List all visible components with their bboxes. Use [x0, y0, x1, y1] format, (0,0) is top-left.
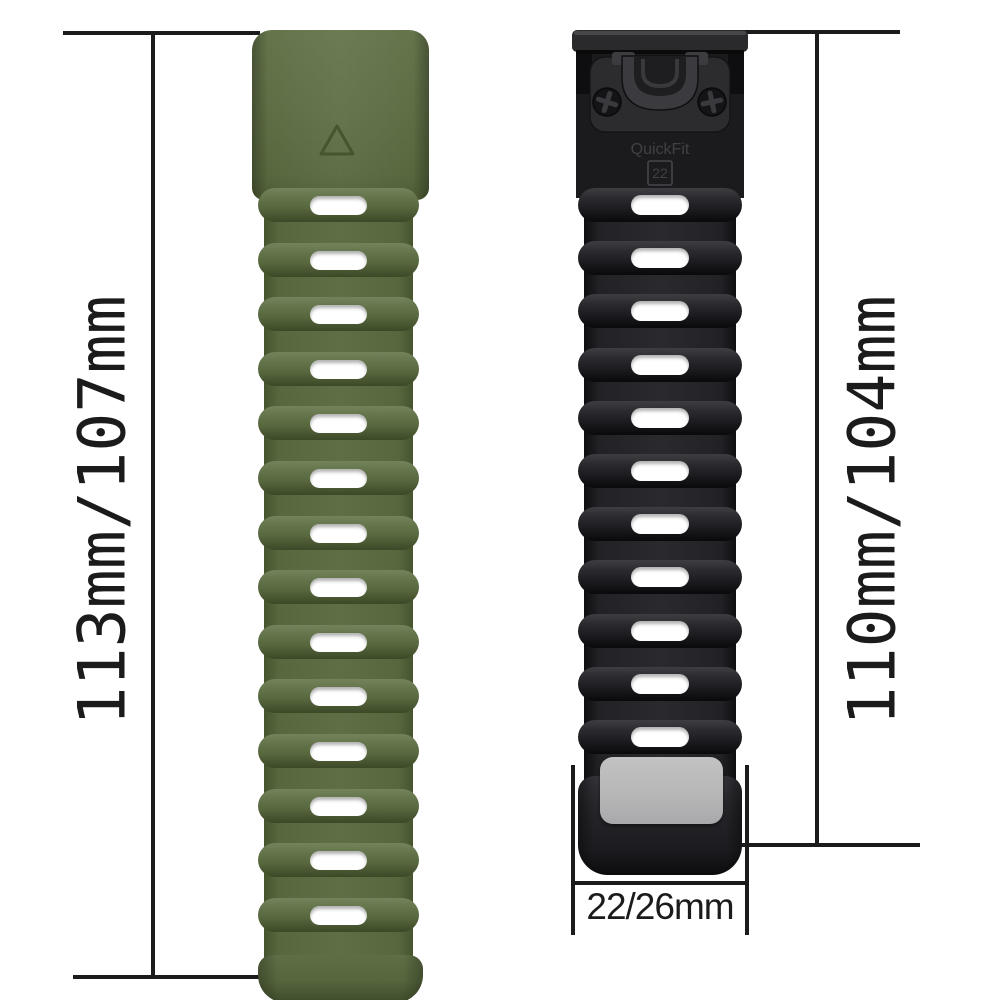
strap-rib	[258, 898, 419, 932]
black-band-ribs	[572, 30, 748, 845]
strap-rib	[258, 243, 419, 277]
strap-hole	[631, 355, 689, 375]
strap-rib	[258, 352, 419, 386]
strap-rib	[578, 507, 742, 541]
strap-hole	[631, 727, 689, 747]
right-length-label: 110mm/104mm	[841, 161, 906, 861]
left-measure-line	[151, 31, 155, 979]
keeper-pad	[600, 757, 723, 824]
black-watch-band: QuickFit 22	[572, 30, 748, 845]
strap-hole	[310, 305, 367, 324]
green-band-ribs	[252, 30, 429, 975]
strap-rib	[258, 734, 419, 768]
strap-rib	[578, 614, 742, 648]
strap-rib	[578, 241, 742, 275]
strap-hole	[310, 196, 367, 215]
strap-hole	[310, 851, 367, 870]
strap-rib	[578, 294, 742, 328]
strap-hole	[631, 195, 689, 215]
left-measure-tick-top	[63, 31, 260, 35]
strap-rib	[258, 188, 419, 222]
strap-rib	[578, 720, 742, 754]
strap-rib	[258, 625, 419, 659]
strap-rib	[578, 560, 742, 594]
strap-rib	[258, 516, 419, 550]
strap-hole	[631, 674, 689, 694]
strap-hole	[631, 248, 689, 268]
strap-rib	[258, 789, 419, 823]
strap-hole	[631, 514, 689, 534]
strap-hole	[310, 251, 367, 270]
strap-rib	[258, 570, 419, 604]
left-measure-tick-bottom	[73, 975, 280, 979]
strap-rib	[258, 843, 419, 877]
strap-hole	[310, 742, 367, 761]
strap-rib	[578, 667, 742, 701]
strap-hole	[310, 524, 367, 543]
right-measure-tick-top	[740, 30, 900, 34]
product-dimension-diagram: 113mm/107mm 110mm/104mm 22/26mm	[0, 0, 1000, 1000]
strap-rib	[258, 461, 419, 495]
left-length-label: 113mm/107mm	[71, 161, 136, 861]
right-measure-line	[815, 30, 819, 847]
strap-hole	[310, 360, 367, 379]
strap-rib	[578, 188, 742, 222]
strap-hole	[310, 906, 367, 925]
strap-hole	[310, 687, 367, 706]
strap-rib	[258, 406, 419, 440]
strap-hole	[631, 301, 689, 321]
strap-rib	[578, 401, 742, 435]
strap-rib	[578, 348, 742, 382]
strap-hole	[310, 414, 367, 433]
strap-hole	[310, 797, 367, 816]
strap-hole	[310, 633, 367, 652]
strap-rib	[578, 454, 742, 488]
strap-hole	[631, 408, 689, 428]
strap-hole	[310, 469, 367, 488]
strap-rib	[258, 297, 419, 331]
strap-hole	[631, 567, 689, 587]
strap-hole	[631, 621, 689, 641]
strap-hole	[310, 578, 367, 597]
green-watch-band	[252, 30, 429, 975]
strap-rib	[258, 679, 419, 713]
width-label: 22/26mm	[572, 885, 748, 929]
strap-hole	[631, 461, 689, 481]
